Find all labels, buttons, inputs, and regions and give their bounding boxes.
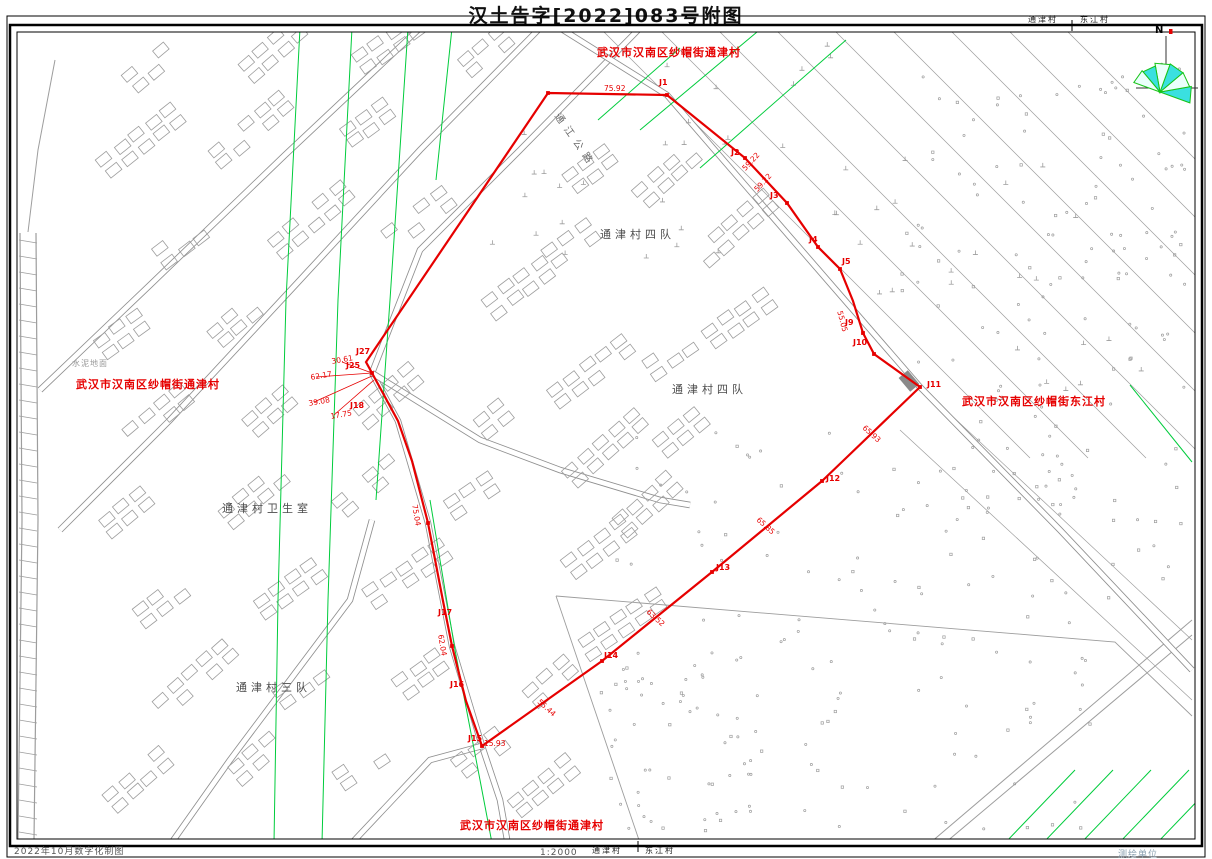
edge-label: 东江村: [1080, 16, 1110, 24]
small-label: 水泥地面: [72, 360, 108, 368]
dist-label: 63.52: [645, 608, 666, 628]
jpoint-label: J5: [842, 258, 851, 266]
north-label: N: [1155, 26, 1163, 36]
village-label: 武汉市汉南区纱帽街通津村: [597, 47, 741, 58]
place-label: 通津村四队: [672, 384, 747, 395]
footer-surveyor: 测绘单位: [1118, 851, 1158, 859]
dist-label: 55.05: [836, 310, 849, 333]
map-label-layer: N 2022年10月数字化制图 1:2000 测绘单位 武汉市汉南区纱帽街通津村…: [0, 0, 1212, 859]
village-label: 武汉市汉南区纱帽街通津村: [460, 820, 604, 831]
edge-label: 通津村: [1028, 16, 1058, 24]
road-label: 通江公路: [552, 112, 597, 170]
jpoint-label: J12: [826, 475, 840, 483]
dist-label: 39.08: [308, 396, 330, 407]
dist-label: 75.92: [604, 85, 625, 93]
dist-label: 59.22: [741, 151, 761, 172]
jpoint-label: J13: [716, 564, 730, 572]
jpoint-label: J1: [659, 79, 668, 87]
jpoint-label: J4: [809, 236, 818, 244]
dist-label: 62.04: [437, 634, 448, 656]
village-label: 武汉市汉南区纱帽街东江村: [962, 396, 1106, 407]
village-label: 武汉市汉南区纱帽街通津村: [76, 379, 220, 390]
dist-label: 65.85: [755, 516, 776, 536]
place-label: 通津村四队: [600, 229, 675, 240]
place-label: 通津村三队: [236, 682, 311, 693]
dist-label: 59.22: [753, 172, 773, 193]
dist-label: 15.93: [484, 740, 505, 748]
dist-label: 55.44: [536, 698, 557, 718]
footer-credit: 2022年10月数字化制图: [14, 848, 124, 857]
dist-label: 17.75: [330, 409, 352, 420]
jpoint-label: J15: [468, 735, 482, 743]
dist-label: 62.17: [310, 370, 332, 381]
jpoint-label: J2: [731, 149, 740, 157]
jpoint-label: J11: [927, 381, 941, 389]
jpoint-label: J25: [346, 362, 360, 370]
edge-label: 东江村: [645, 847, 675, 855]
jpoint-label: J3: [770, 192, 779, 200]
jpoint-label: J18: [350, 402, 364, 410]
edge-label: 通津村: [592, 847, 622, 855]
jpoint-label: J16: [450, 681, 464, 689]
map-scale: 1:2000: [540, 849, 578, 858]
place-label: 通津村卫生室: [222, 503, 312, 514]
dist-label: 65.93: [861, 424, 882, 444]
jpoint-label: J10: [853, 339, 867, 347]
jpoint-label: J17: [438, 609, 452, 617]
map-sheet: 汉土告字[2022]083号附图 N 2022年10月数字化制图 1:2000 …: [0, 0, 1212, 859]
jpoint-label: J14: [604, 652, 618, 660]
dist-label: 75.04: [411, 504, 422, 526]
jpoint-label: J27: [356, 348, 370, 356]
